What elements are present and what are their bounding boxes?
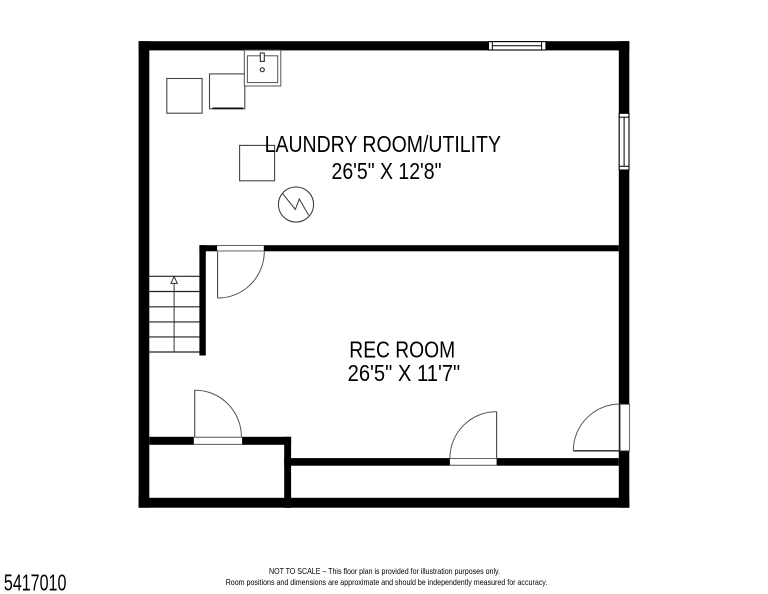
svg-text:26'5" X 12'8": 26'5" X 12'8" [332, 158, 442, 184]
svg-text:Room positions and dimensions: Room positions and dimensions are approx… [226, 577, 548, 587]
svg-text:REC ROOM: REC ROOM [349, 337, 455, 363]
svg-text:LAUNDRY ROOM/UTILITY: LAUNDRY ROOM/UTILITY [265, 131, 501, 157]
svg-text:26'5" X 11'7": 26'5" X 11'7" [348, 360, 461, 386]
svg-text:NOT TO SCALE – This floor plan: NOT TO SCALE – This floor plan is provid… [269, 566, 500, 576]
svg-text:5417010: 5417010 [4, 570, 67, 594]
